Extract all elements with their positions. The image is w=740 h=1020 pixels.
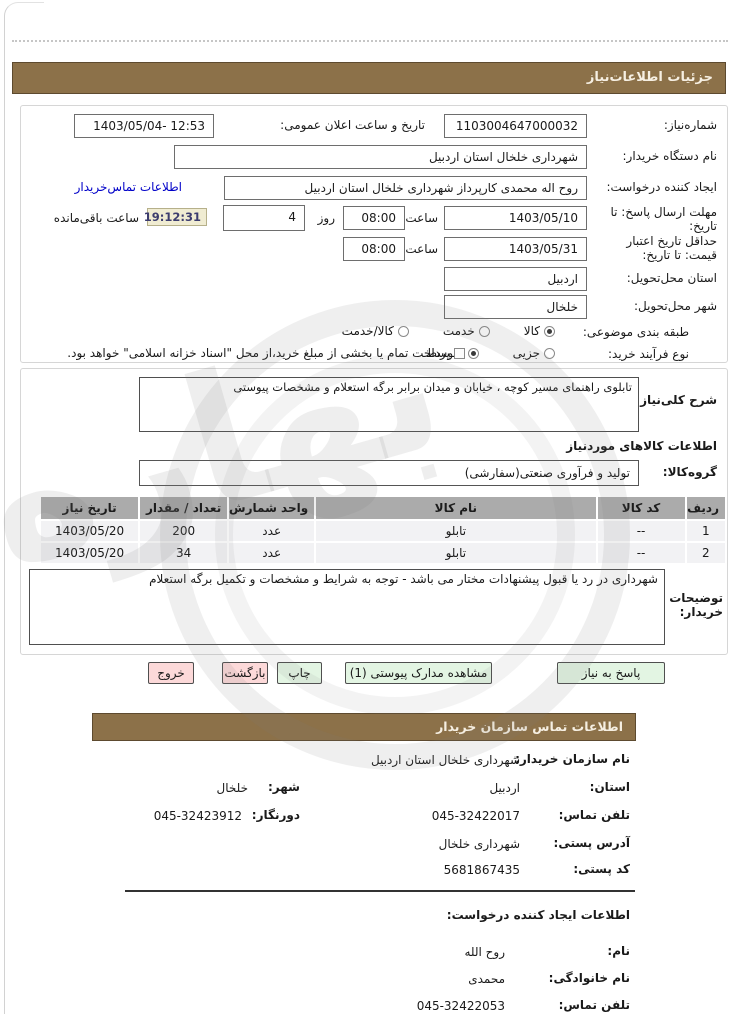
cell-goods-name: تابلو bbox=[316, 521, 595, 541]
buyer-org-label: نام دستگاه خریدار: bbox=[623, 149, 718, 163]
radio-goods-icon[interactable] bbox=[544, 326, 555, 337]
contact-province-label: استان: bbox=[590, 780, 630, 794]
radio-medium-icon[interactable] bbox=[468, 348, 479, 359]
contact-org-value: شهرداری خلخال استان اردبیل bbox=[290, 753, 520, 767]
treasury-checkbox-item[interactable]: پرداخت تمام یا بخشی از مبلغ خرید،از محل … bbox=[67, 346, 465, 360]
radio-option-service[interactable]: خدمت bbox=[443, 324, 490, 338]
days-remaining-value: 4 bbox=[288, 210, 296, 224]
buyer-org-value: شهرداری خلخال استان اردبیل bbox=[429, 150, 578, 164]
need-details-page: جزئیات اطلاعات‌نیاز شماره‌نیاز: 11030046… bbox=[0, 0, 740, 1020]
day-unit-label: روز bbox=[318, 211, 335, 225]
creator-name-value: روح الله bbox=[355, 945, 505, 959]
table-row: 1 -- تابلو عدد 200 1403/05/20 bbox=[41, 521, 725, 541]
price-validity-date-field[interactable]: 1403/05/31 bbox=[444, 237, 587, 261]
contact-phone-label: تلفن تماس: bbox=[559, 808, 630, 822]
col-unit: واحد شمارش bbox=[229, 497, 314, 519]
buyer-contact-link[interactable]: اطلاعات تماس‌خریدار bbox=[75, 180, 182, 194]
cell-goods-name: تابلو bbox=[316, 543, 595, 563]
announce-datetime-field[interactable]: 1403/05/04- 12:53 bbox=[74, 114, 214, 138]
treasury-checkbox-icon[interactable] bbox=[454, 348, 465, 359]
process-type-label: نوع فرآیند خرید: bbox=[608, 347, 689, 361]
radio-option-partial[interactable]: جزیی bbox=[513, 346, 555, 360]
respond-button[interactable]: پاسخ به نیاز bbox=[557, 662, 665, 684]
countdown-timer: 19:12:31 bbox=[147, 208, 207, 226]
goods-section-header: اطلاعات کالاهای موردنیاز bbox=[566, 439, 717, 453]
contact-address-value: شهرداری خلخال bbox=[290, 837, 520, 851]
need-info-panel: شماره‌نیاز: 1103004647000032 تاریخ و ساع… bbox=[20, 105, 728, 363]
goods-info-panel: شرح کلی‌نیاز: تابلوی راهنمای مسیر کوچه ،… bbox=[20, 368, 728, 655]
cell-goods-code: -- bbox=[598, 521, 685, 541]
back-button[interactable]: بازگشت bbox=[222, 662, 268, 684]
creator-family-value: محمدی bbox=[355, 972, 505, 986]
deadline-hour-label: ساعت bbox=[405, 211, 438, 225]
need-number-value: 1103004647000032 bbox=[456, 119, 578, 133]
goods-group-field[interactable]: تولید و فرآوری صنعتی(سفارشی) bbox=[139, 460, 639, 486]
creator-name-label: نام: bbox=[607, 944, 630, 958]
radio-service-icon[interactable] bbox=[479, 326, 490, 337]
validity-hour-label: ساعت bbox=[405, 242, 438, 256]
creator-info-header: اطلاعات ایجاد کننده درخواست: bbox=[447, 908, 630, 922]
need-description-label: شرح کلی‌نیاز: bbox=[635, 393, 717, 407]
table-row: 2 -- تابلو عدد 34 1403/05/20 bbox=[41, 543, 725, 563]
treasury-checkbox-label: پرداخت تمام یا بخشی از مبلغ خرید،از محل … bbox=[67, 346, 450, 360]
goods-group-value: تولید و فرآوری صنعتی(سفارشی) bbox=[465, 466, 630, 480]
classification-radio-group: کالا خدمت کالا/خدمت bbox=[342, 324, 555, 338]
response-deadline-hour: 08:00 bbox=[361, 211, 396, 225]
contact-phone-value: 045-32422017 bbox=[290, 809, 520, 823]
cell-row-number: 2 bbox=[687, 543, 725, 563]
days-remaining-field[interactable]: 4 bbox=[223, 205, 305, 231]
contact-postal-value: 5681867435 bbox=[290, 863, 520, 877]
delivery-province-field[interactable]: اردبیل bbox=[444, 267, 587, 291]
contact-city-label: شهر: bbox=[268, 780, 300, 794]
price-validity-hour: 08:00 bbox=[361, 242, 396, 256]
cell-unit: عدد bbox=[229, 521, 314, 541]
announce-datetime-value: 1403/05/04- 12:53 bbox=[93, 119, 205, 133]
buyer-notes-value: شهرداری در رد یا قبول پیشنهادات مختار می… bbox=[149, 572, 658, 586]
cell-quantity: 34 bbox=[140, 543, 227, 563]
section-header-need-details: جزئیات اطلاعات‌نیاز bbox=[12, 62, 726, 94]
section-header-buyer-contact: اطلاعات تماس سازمان خریدار bbox=[92, 713, 636, 741]
radio-goods-service-icon[interactable] bbox=[398, 326, 409, 337]
contact-postal-label: کد پستی: bbox=[573, 862, 630, 876]
cell-need-date: 1403/05/20 bbox=[41, 543, 138, 563]
need-number-field[interactable]: 1103004647000032 bbox=[444, 114, 587, 138]
print-button[interactable]: چاپ bbox=[277, 662, 322, 684]
top-dotted-divider bbox=[12, 40, 728, 42]
radio-partial-icon[interactable] bbox=[544, 348, 555, 359]
contact-province-value: اردبیل bbox=[290, 781, 520, 795]
request-creator-field[interactable]: روح اله محمدی کارپرداز شهرداری خلخال است… bbox=[224, 176, 587, 200]
creator-phone-value: 045-32422053 bbox=[355, 999, 505, 1013]
price-validity-label: حداقل تاریخ اعتبار قیمت: تا تاریخ: bbox=[592, 234, 717, 262]
exit-button[interactable]: خروج bbox=[148, 662, 194, 684]
hours-remaining-label: ساعت باقی‌مانده bbox=[54, 211, 139, 225]
response-deadline-date-field[interactable]: 1403/05/10 bbox=[444, 206, 587, 230]
contact-org-label: نام سازمان خریدار: bbox=[515, 752, 630, 766]
cell-goods-code: -- bbox=[598, 543, 685, 563]
need-description-value: تابلوی راهنمای مسیر کوچه ، خیابان و میدا… bbox=[233, 380, 632, 394]
response-deadline-hour-field[interactable]: 08:00 bbox=[343, 206, 405, 230]
price-validity-hour-field[interactable]: 08:00 bbox=[343, 237, 405, 261]
cell-quantity: 200 bbox=[140, 521, 227, 541]
delivery-city-label: شهر محل‌تحویل: bbox=[634, 299, 717, 313]
price-validity-date: 1403/05/31 bbox=[509, 242, 578, 256]
need-number-label: شماره‌نیاز: bbox=[664, 118, 717, 132]
radio-option-goods[interactable]: کالا bbox=[524, 324, 555, 338]
view-attachments-button[interactable]: مشاهده مدارک پیوستی (1) bbox=[345, 662, 492, 684]
request-creator-value: روح اله محمدی کارپرداز شهرداری خلخال است… bbox=[305, 181, 578, 195]
col-quantity: تعداد / مقدار bbox=[140, 497, 227, 519]
announce-datetime-label: تاریخ و ساعت اعلان عمومی: bbox=[280, 118, 425, 132]
countdown-value: 19:12:31 bbox=[144, 210, 201, 224]
contact-address-label: آدرس پستی: bbox=[554, 836, 630, 850]
radio-goods-service-label: کالا/خدمت bbox=[342, 324, 394, 338]
response-deadline-date: 1403/05/10 bbox=[509, 211, 578, 225]
creator-family-label: نام خانوادگی: bbox=[549, 971, 630, 985]
delivery-city-value: خلخال bbox=[546, 300, 578, 314]
buyer-notes-textarea[interactable]: شهرداری در رد یا قبول پیشنهادات مختار می… bbox=[29, 569, 665, 645]
delivery-province-value: اردبیل bbox=[547, 272, 578, 286]
delivery-province-label: استان محل‌تحویل: bbox=[627, 271, 717, 285]
contact-city-value: خلخال bbox=[128, 781, 248, 795]
delivery-city-field[interactable]: خلخال bbox=[444, 295, 587, 319]
contact-fax-label: دورنگار: bbox=[252, 808, 300, 822]
col-need-date: تاریخ نیاز bbox=[41, 497, 138, 519]
contact-fax-value: 045-32423912 bbox=[122, 809, 242, 823]
col-goods-code: کد کالا bbox=[598, 497, 685, 519]
radio-partial-label: جزیی bbox=[513, 346, 540, 360]
radio-service-label: خدمت bbox=[443, 324, 475, 338]
request-creator-label: ایجاد کننده درخواست: bbox=[606, 180, 717, 194]
response-deadline-label: مهلت ارسال پاسخ: تا تاریخ: bbox=[609, 205, 717, 233]
col-goods-name: نام کالا bbox=[316, 497, 595, 519]
buyer-notes-label: توضیحات خریدار: bbox=[657, 591, 723, 619]
goods-table-header-row: ردیف کد کالا نام کالا واحد شمارش تعداد /… bbox=[41, 497, 725, 519]
radio-goods-label: کالا bbox=[524, 324, 540, 338]
cell-need-date: 1403/05/20 bbox=[41, 521, 138, 541]
buyer-org-field[interactable]: شهرداری خلخال استان اردبیل bbox=[174, 145, 587, 169]
need-description-textarea[interactable]: تابلوی راهنمای مسیر کوچه ، خیابان و میدا… bbox=[139, 377, 639, 432]
goods-table: ردیف کد کالا نام کالا واحد شمارش تعداد /… bbox=[39, 495, 727, 565]
radio-option-goods-service[interactable]: کالا/خدمت bbox=[342, 324, 409, 338]
section-divider bbox=[125, 890, 635, 892]
goods-group-label: گروه‌کالا: bbox=[663, 465, 717, 479]
cell-unit: عدد bbox=[229, 543, 314, 563]
col-row-number: ردیف bbox=[687, 497, 725, 519]
classification-label: طبقه بندی موضوعی: bbox=[583, 325, 689, 339]
cell-row-number: 1 bbox=[687, 521, 725, 541]
creator-phone-label: تلفن تماس: bbox=[559, 998, 630, 1012]
